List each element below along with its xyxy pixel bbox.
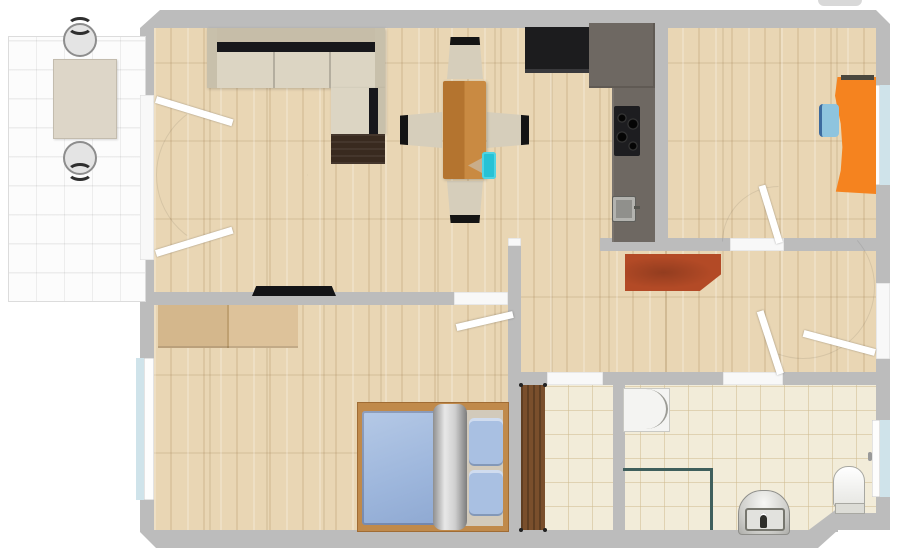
sofa-chaise[interactable] xyxy=(331,88,385,134)
chair-back-icon xyxy=(67,163,93,181)
hinge-icon xyxy=(519,383,523,387)
wall-bedroom-hall xyxy=(508,298,521,530)
tv[interactable] xyxy=(252,286,336,296)
balcony-door-frame xyxy=(140,95,154,260)
hinge-icon xyxy=(519,528,523,532)
bed-blanket xyxy=(433,404,467,530)
wall-toilet-bottom xyxy=(832,513,890,530)
dining-chair-top[interactable] xyxy=(447,37,483,79)
toilet-bowl xyxy=(833,466,865,507)
hall-wardrobe[interactable] xyxy=(625,254,721,291)
bathroom-door-threshold xyxy=(723,372,783,385)
bed-pillow xyxy=(469,470,503,516)
washer-door-arc xyxy=(644,389,668,429)
storage-opening-threshold xyxy=(547,372,603,385)
sofa-chest[interactable] xyxy=(331,134,385,164)
floor-plan-canvas xyxy=(0,0,900,555)
toilet-tank xyxy=(835,503,865,514)
sofa-seam xyxy=(273,52,275,88)
shower-area[interactable] xyxy=(625,471,710,530)
sofa-seam xyxy=(329,52,331,88)
wall-hall-bath-c xyxy=(783,372,876,385)
entrance-door-threshold xyxy=(876,283,890,359)
bedroom-window[interactable] xyxy=(144,358,154,500)
bedroom-window-glass xyxy=(136,358,144,500)
wall-stub-cap xyxy=(508,238,521,246)
dining-chair-bottom[interactable] xyxy=(447,181,483,223)
washing-machine[interactable] xyxy=(623,388,670,432)
bed-pillow xyxy=(469,418,503,466)
chair-back-icon xyxy=(67,17,93,35)
bedroom-wardrobe[interactable] xyxy=(158,305,298,348)
desk-chair[interactable] xyxy=(819,104,839,137)
faucet-icon xyxy=(634,206,640,209)
cooktop[interactable] xyxy=(614,106,640,156)
office-window-glass xyxy=(880,85,890,185)
balcony-floor xyxy=(8,36,146,302)
kitchen-sink[interactable] xyxy=(612,196,636,222)
wall-living-office xyxy=(655,28,668,251)
wall-hook-icon xyxy=(868,452,872,461)
wall-hall-bath-b xyxy=(603,372,723,385)
bathroom-window[interactable] xyxy=(872,420,880,497)
bathroom-sink[interactable] xyxy=(738,490,790,535)
bedroom-door-threshold xyxy=(454,292,508,305)
wall-living-hall-stub xyxy=(508,245,521,305)
toilet[interactable] xyxy=(833,466,865,513)
dining-chair-left[interactable] xyxy=(400,112,442,148)
double-bed[interactable] xyxy=(357,402,509,532)
hinge-icon xyxy=(543,528,547,532)
faucet-icon xyxy=(760,513,767,528)
bed-duvet xyxy=(362,411,436,525)
dining-chair-right[interactable] xyxy=(487,112,529,148)
bathroom-window-glass xyxy=(880,420,890,497)
hinge-icon xyxy=(543,383,547,387)
balcony-chair-top[interactable] xyxy=(63,23,97,57)
balcony-table[interactable] xyxy=(53,59,117,139)
storage-door-panel[interactable] xyxy=(521,385,545,530)
shower-glass-side xyxy=(710,468,713,530)
compass-widget-partial xyxy=(818,0,862,6)
corner-sofa[interactable] xyxy=(207,28,385,88)
tablet-on-table[interactable] xyxy=(482,152,496,179)
laptop[interactable] xyxy=(841,75,874,80)
kitchen-appliance[interactable] xyxy=(525,27,589,73)
balcony-chair-bottom[interactable] xyxy=(63,141,97,175)
kitchen-counter-corner[interactable] xyxy=(589,23,655,88)
